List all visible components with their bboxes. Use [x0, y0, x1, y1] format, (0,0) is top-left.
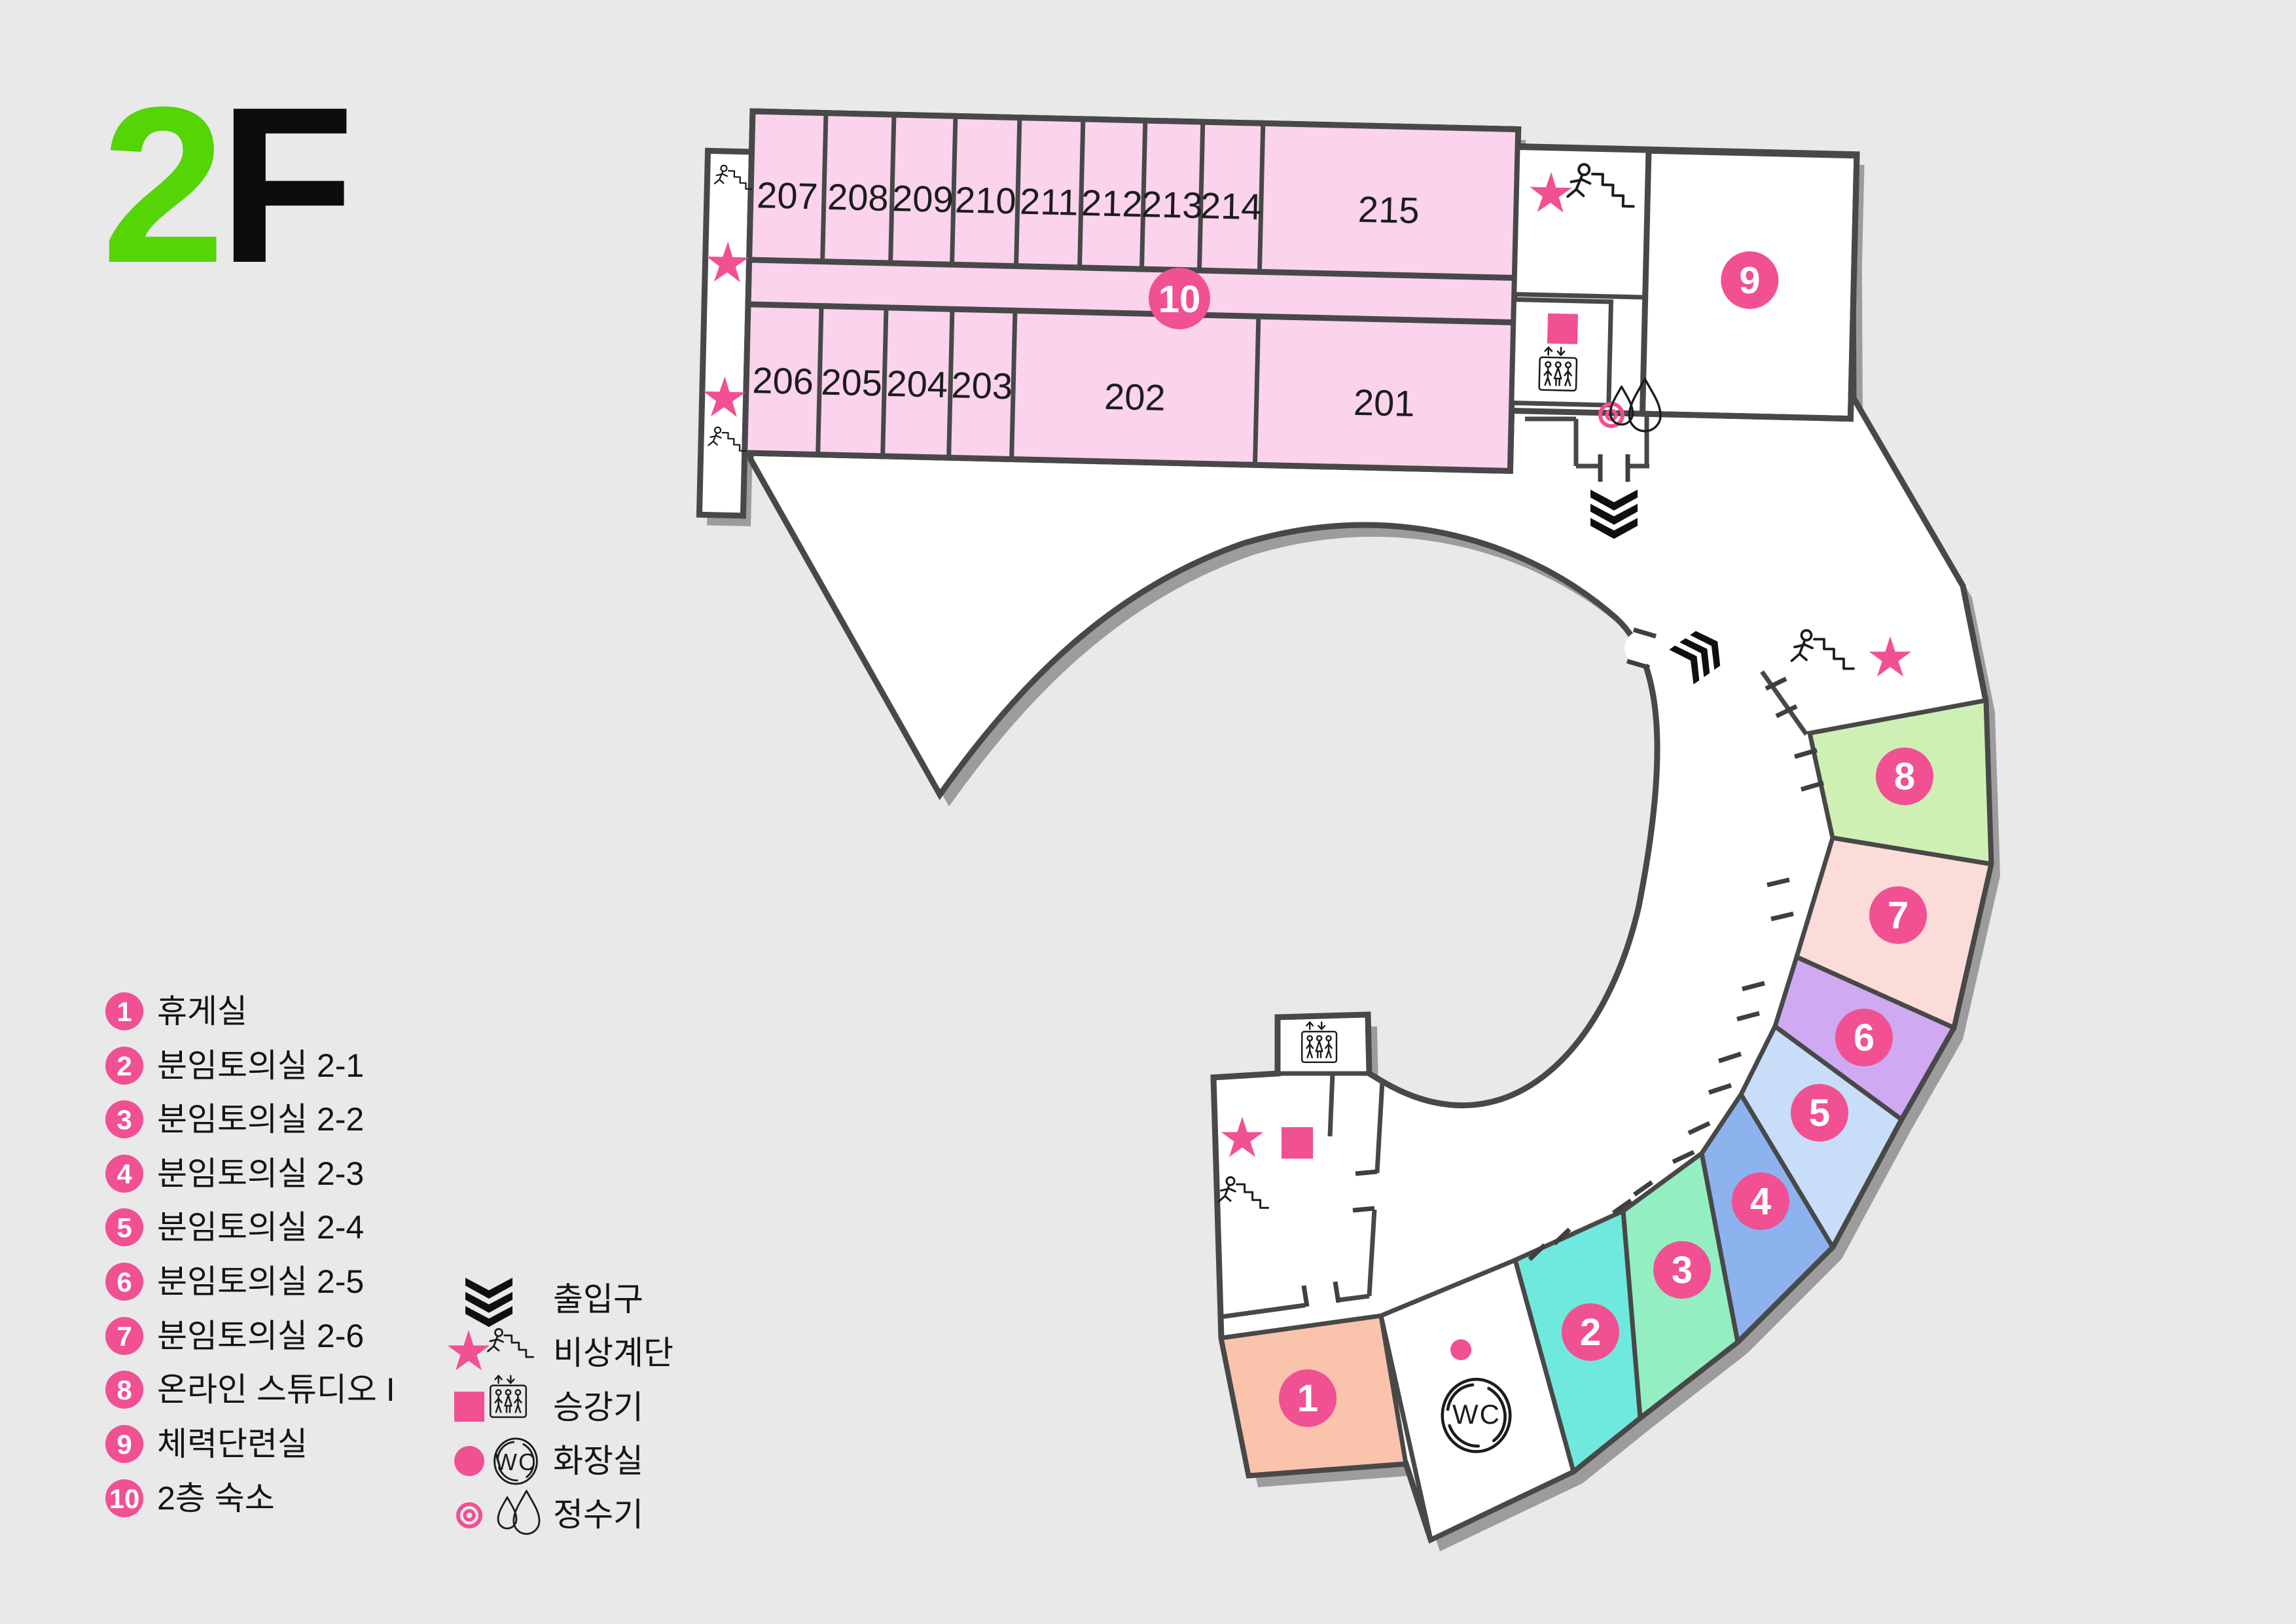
badge-room-5: 5 [1791, 1084, 1848, 1142]
legend-icon-item: WC 화장실 [454, 1437, 643, 1485]
svg-text:10: 10 [109, 1483, 140, 1514]
room-label-204: 204 [886, 363, 948, 405]
page-title: 2F [101, 61, 348, 310]
emergency-stairs-icon [488, 1329, 533, 1357]
svg-text:4: 4 [1750, 1180, 1771, 1223]
svg-text:온라인 스튜디오 I: 온라인 스튜디오 I [157, 1371, 395, 1408]
legend-item: 5분임토의실 2-4 [105, 1208, 364, 1246]
svg-text:8: 8 [1894, 755, 1915, 798]
elevator-marker-square [1282, 1127, 1313, 1159]
svg-text:정수기: 정수기 [553, 1496, 643, 1533]
room-label-207: 207 [757, 174, 819, 217]
legend-item: 102층 숙소 [105, 1479, 275, 1517]
svg-text:2: 2 [117, 1051, 132, 1081]
room-label-203: 203 [951, 364, 1013, 406]
legend-item: 3분임토의실 2-2 [105, 1100, 364, 1138]
room-label-212: 212 [1081, 182, 1143, 225]
restroom-dot-icon [454, 1446, 484, 1476]
room-label-215: 215 [1357, 189, 1420, 231]
svg-text:6: 6 [1854, 1017, 1874, 1059]
badge-room-3: 3 [1653, 1241, 1711, 1299]
legend-icon-item: 출입구 [465, 1278, 643, 1327]
room-label-210: 210 [954, 179, 1016, 221]
svg-text:4: 4 [117, 1159, 132, 1189]
svg-text:8: 8 [117, 1375, 132, 1405]
svg-text:WC: WC [495, 1449, 537, 1475]
water-purifier-ring-icon [458, 1504, 480, 1526]
badge-room-4: 4 [1732, 1172, 1789, 1230]
room-label-205: 205 [821, 361, 883, 404]
room-label-201: 201 [1353, 382, 1415, 424]
legend-item: 7분임토의실 2-6 [105, 1317, 364, 1355]
room-label-209: 209 [891, 177, 954, 220]
legend-rooms: 1휴게실 2분임토의실 2-1 3분임토의실 2-2 4분임토의실 2-3 5분… [105, 992, 395, 1517]
legend-item: 4분임토의실 2-3 [105, 1155, 364, 1193]
svg-text:3: 3 [1672, 1249, 1693, 1291]
water-drops-icon [498, 1491, 539, 1534]
svg-text:7: 7 [117, 1321, 132, 1352]
svg-text:10: 10 [1158, 278, 1201, 321]
legend-icon-item: 승강기 [454, 1376, 643, 1426]
legend-icons: 출입구 비상계단 승강기 WC 화장실 정수기 [448, 1278, 673, 1534]
elevator-marker-square [1547, 314, 1578, 344]
svg-text:분임토의실 2-5: 분임토의실 2-5 [157, 1263, 364, 1300]
legend-item: 1휴게실 [105, 992, 247, 1030]
svg-text:분임토의실 2-4: 분임토의실 2-4 [157, 1209, 364, 1246]
emergency-star-icon [448, 1330, 490, 1371]
legend-icon-item: 정수기 [458, 1491, 643, 1534]
floor-plan-page: 207 208 209 210 211 212 213 214 215 206 … [0, 0, 2296, 1624]
title-floor-digit: 2 [101, 61, 220, 310]
badge-room-10: 10 [1149, 268, 1210, 329]
elevator-icon [490, 1376, 526, 1417]
legend-item: 9체력단련실 [105, 1425, 308, 1463]
elevator-marker-square [454, 1392, 484, 1422]
svg-text:1: 1 [117, 996, 132, 1027]
title-floor-letter: F [219, 61, 348, 310]
svg-text:비상계단: 비상계단 [553, 1335, 673, 1371]
room-label-208: 208 [827, 176, 889, 219]
room-label-206: 206 [752, 359, 814, 402]
svg-text:3: 3 [117, 1104, 132, 1135]
badge-room-2: 2 [1562, 1303, 1619, 1361]
svg-text:7: 7 [1888, 894, 1909, 937]
room-label-214: 214 [1200, 185, 1262, 227]
svg-text:화장실: 화장실 [553, 1443, 643, 1479]
room-label-211: 211 [1019, 181, 1079, 223]
wc-label: WC [1452, 1399, 1501, 1430]
legend-item: 6분임토의실 2-5 [105, 1263, 364, 1301]
svg-text:체력단련실: 체력단련실 [157, 1426, 308, 1462]
svg-text:분임토의실 2-3: 분임토의실 2-3 [157, 1155, 364, 1192]
svg-text:휴게실: 휴게실 [157, 993, 247, 1030]
legend-icon-item: 비상계단 [448, 1329, 673, 1371]
legend-item: 8온라인 스튜디오 I [105, 1371, 395, 1409]
stairwell-room [1515, 148, 1649, 298]
room-label-202: 202 [1103, 376, 1166, 418]
svg-text:출입구: 출입구 [553, 1281, 643, 1318]
floor-plan-2f: 207 208 209 210 211 212 213 214 215 206 … [0, 0, 2296, 1624]
badge-room-8: 8 [1876, 748, 1933, 805]
svg-text:5: 5 [1809, 1092, 1830, 1134]
badge-room-6: 6 [1835, 1009, 1893, 1066]
svg-text:분임토의실 2-6: 분임토의실 2-6 [157, 1318, 364, 1354]
badge-room-1: 1 [1279, 1369, 1336, 1427]
svg-text:9: 9 [117, 1429, 132, 1460]
restroom-dot-icon [1450, 1339, 1471, 1360]
svg-text:1: 1 [1297, 1377, 1318, 1420]
svg-text:2층 숙소: 2층 숙소 [157, 1480, 275, 1517]
legend-item: 2분임토의실 2-1 [105, 1047, 364, 1085]
svg-text:승강기: 승강기 [553, 1389, 643, 1426]
svg-text:6: 6 [117, 1267, 132, 1297]
svg-text:9: 9 [1738, 259, 1761, 302]
svg-text:분임토의실 2-2: 분임토의실 2-2 [157, 1101, 364, 1138]
svg-text:5: 5 [117, 1212, 132, 1243]
badge-room-7: 7 [1869, 886, 1927, 944]
svg-text:2: 2 [1580, 1311, 1601, 1354]
svg-text:분임토의실 2-1: 분임토의실 2-1 [157, 1047, 364, 1084]
entrance-chevrons-icon [465, 1278, 512, 1327]
room-label-213: 213 [1141, 183, 1203, 226]
